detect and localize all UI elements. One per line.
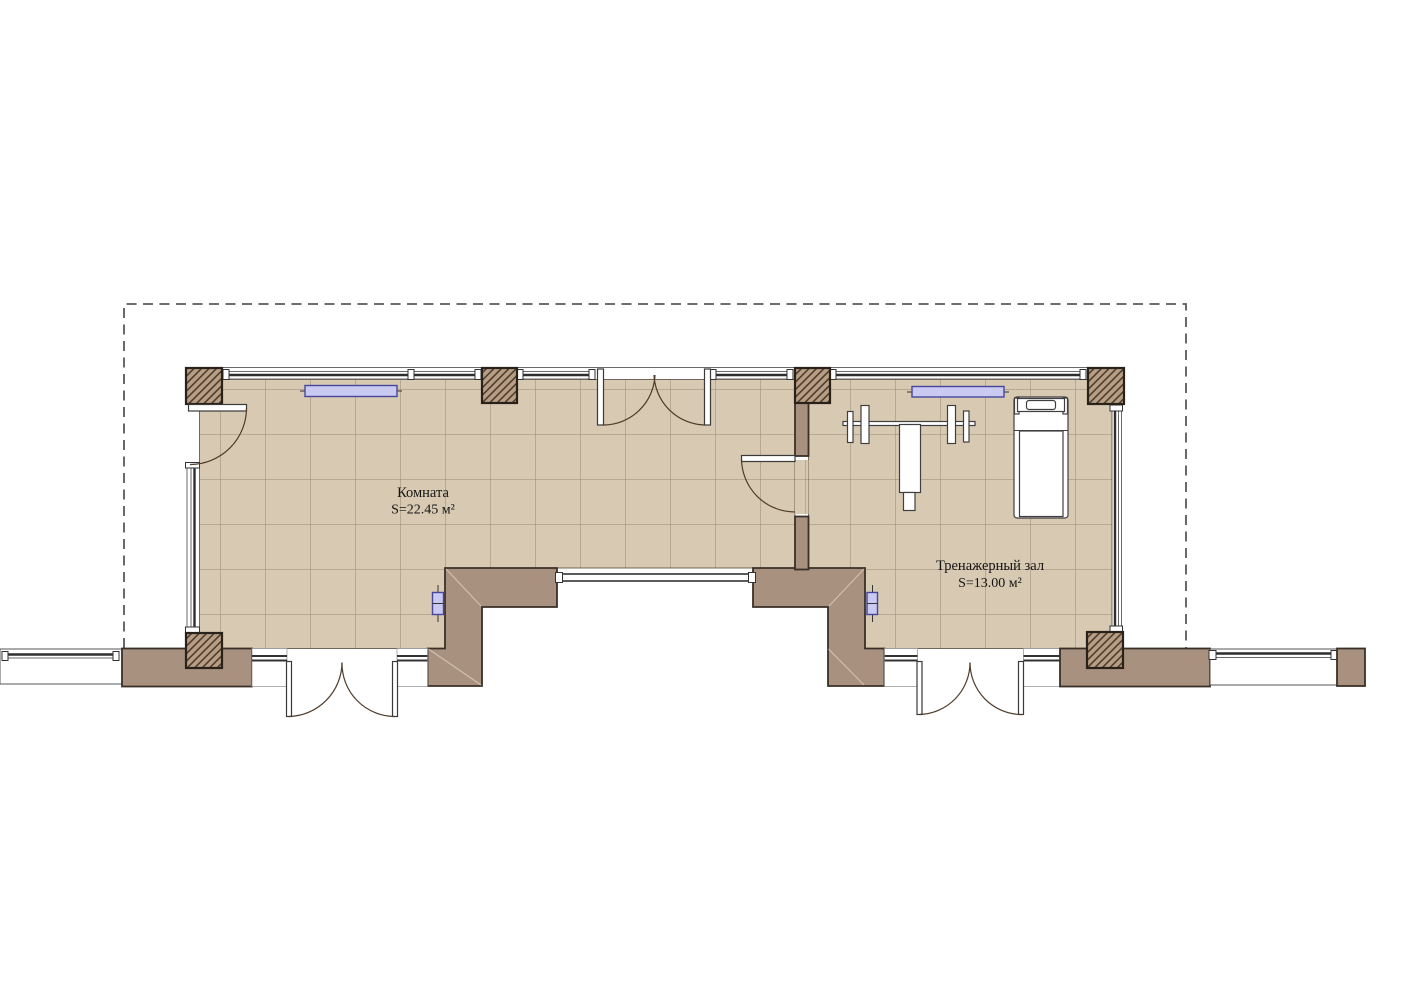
floor-plan-canvas: Комната S=22.45 м² Тренажерный зал S=13.…	[0, 0, 1413, 1000]
treadmill-display	[1027, 401, 1056, 410]
door-opening-floor-strip	[795, 460, 809, 514]
niche-window	[556, 573, 756, 583]
treadmill-icon	[1014, 397, 1068, 518]
weight-plate	[848, 412, 854, 443]
neighbor-wall-right	[1209, 649, 1365, 687]
floor-plan-svg: Комната S=22.45 м² Тренажерный зал S=13.…	[0, 0, 1413, 1000]
weight-plate	[964, 411, 970, 442]
bench-foot	[904, 493, 916, 511]
bottom-wall-right-segment	[1060, 649, 1210, 687]
door-leaf	[189, 405, 247, 412]
treadmill-belt	[1020, 431, 1064, 517]
column	[795, 368, 830, 403]
radiator	[300, 386, 402, 397]
column	[482, 368, 517, 403]
room-1-area-label: S=22.45 м²	[391, 503, 455, 518]
door-jamb	[1024, 649, 1061, 687]
door-jamb	[397, 649, 428, 687]
door-leaf	[705, 369, 711, 425]
door-leaf	[917, 662, 922, 715]
door-jamb	[885, 649, 918, 687]
door-leaf	[1019, 662, 1024, 715]
radiator	[907, 387, 1009, 398]
door-jamb	[252, 649, 287, 687]
room-2-area-label: S=13.00 м²	[958, 576, 1022, 591]
weight-plate	[948, 406, 956, 444]
room-1-name-label: Комната	[397, 485, 449, 501]
column	[1087, 632, 1123, 668]
door-leaf	[287, 662, 292, 717]
column	[1088, 368, 1124, 404]
door-leaf	[598, 369, 604, 425]
room-2-name-label: Тренажерный зал	[936, 558, 1044, 574]
column	[186, 368, 222, 404]
column	[186, 633, 222, 668]
neighbor-wall-left	[0, 649, 122, 684]
door-leaf	[393, 662, 398, 717]
neighbor-wall-right-pier	[1337, 649, 1365, 687]
weight-plate	[861, 406, 869, 444]
bench-pad	[900, 425, 921, 493]
door-leaf	[742, 456, 796, 462]
